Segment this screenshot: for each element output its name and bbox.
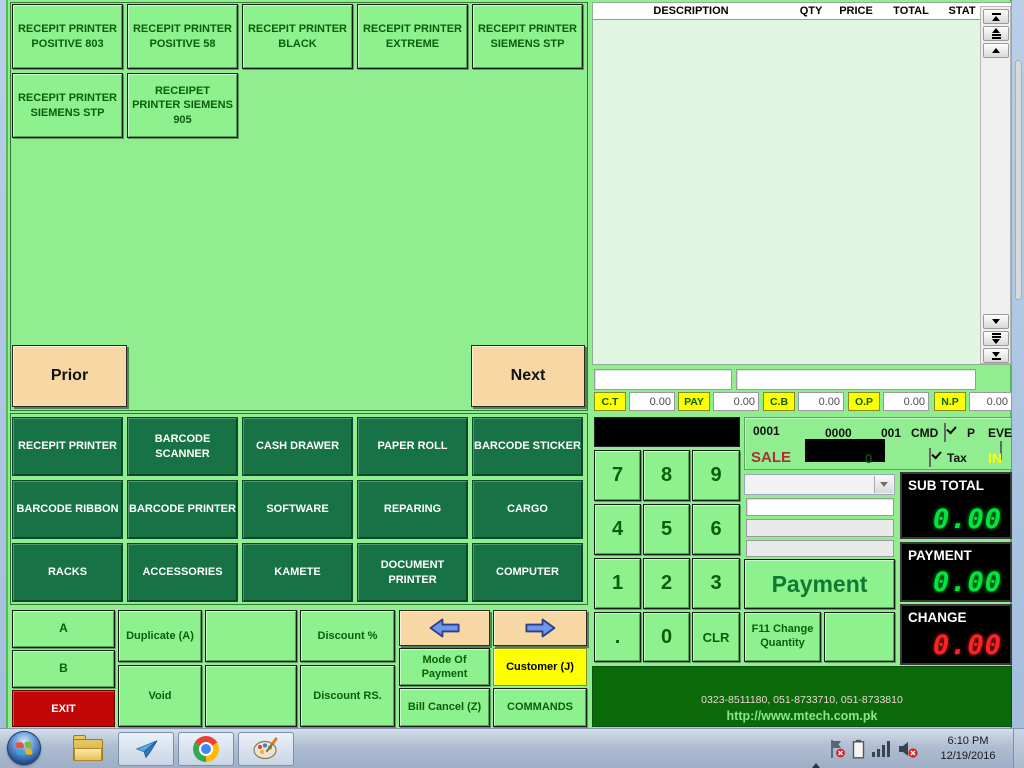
subtotal-label: SUB TOTAL	[902, 474, 1010, 493]
product-button-3[interactable]: RECEPIT PRINTER BLACK	[242, 4, 353, 69]
category-button-reparing[interactable]: REPARING	[357, 480, 468, 539]
commands-button[interactable]: COMMANDS	[493, 688, 587, 727]
discount-rs-button[interactable]: Discount RS.	[300, 665, 395, 727]
eve-label: EVE	[988, 426, 1012, 440]
flag-yellow	[25, 748, 33, 755]
key-label: 9	[710, 464, 721, 487]
bar-icon	[992, 34, 1001, 36]
folder-icon	[73, 739, 103, 761]
transaction-info-panel: 0001 0000 001 CMD P EVE SALE 0 Tax IN	[744, 417, 1012, 470]
category-label: PAPER ROLL	[377, 439, 447, 454]
a-label: A	[59, 621, 68, 637]
taskbar-chrome-button[interactable]	[178, 732, 234, 766]
product-button-6[interactable]: RECEPIT PRINTER SIEMENS STP	[12, 73, 123, 138]
ct-label: C.T	[594, 392, 626, 411]
in-label: IN	[988, 450, 1002, 466]
a-button[interactable]: A	[12, 610, 115, 648]
header-description: DESCRIPTION	[653, 5, 728, 17]
numpad-2[interactable]: 2	[643, 558, 690, 609]
blank-button-2[interactable]	[205, 665, 297, 727]
bar-icon	[992, 336, 1001, 338]
key-label: 4	[612, 518, 623, 541]
category-button-software[interactable]: SOFTWARE	[242, 480, 353, 539]
flag-red	[16, 742, 24, 749]
key-label: 2	[661, 572, 672, 595]
product-button-7[interactable]: RECEIPET PRINTER SIEMENS 905	[127, 73, 238, 138]
payment-type-dropdown[interactable]	[744, 474, 895, 495]
category-label: DOCUMENT PRINTER	[358, 558, 467, 588]
numpad-display	[594, 417, 740, 447]
change-label: CHANGE	[902, 606, 1010, 625]
counter-number: 0000	[825, 426, 852, 440]
numpad-0[interactable]: 0	[643, 612, 690, 662]
category-label: ACCESSORIES	[142, 565, 222, 580]
header-price: PRICE	[839, 5, 873, 17]
duplicate-label: Duplicate (A)	[126, 629, 194, 643]
numpad-4[interactable]: 4	[594, 504, 641, 555]
category-label: REPARING	[384, 502, 441, 517]
np-value: 0.00	[969, 392, 1012, 411]
taskbar-clock[interactable]: 6:10 PM 12/19/2016	[928, 734, 1008, 764]
windows-logo-icon	[7, 731, 41, 765]
change-display: CHANGE 0.00	[900, 604, 1012, 665]
category-button-paper-roll[interactable]: PAPER ROLL	[357, 417, 468, 476]
numpad-1[interactable]: 1	[594, 558, 641, 609]
taskbar-paint-button[interactable]	[238, 732, 294, 766]
category-label: CARGO	[507, 502, 548, 517]
triangle-up-icon	[992, 16, 1000, 21]
key-label: 8	[661, 464, 672, 487]
payment-display: PAYMENT 0.00	[900, 542, 1012, 602]
category-label: SOFTWARE	[266, 502, 328, 517]
category-button-computer[interactable]: COMPUTER	[472, 543, 583, 602]
website-link[interactable]: http://www.mtech.com.pk	[727, 709, 878, 723]
void-button[interactable]: Void	[118, 665, 202, 727]
category-button-barcode-scanner[interactable]: BARCODE SCANNER	[127, 417, 238, 476]
numpad-9[interactable]: 9	[692, 450, 740, 501]
numpad-7[interactable]: 7	[594, 450, 641, 501]
bill-number: 0001	[753, 424, 780, 438]
tax-checkbox[interactable]	[929, 448, 931, 467]
pay-value: 0.00	[713, 392, 759, 411]
next-label: Next	[511, 367, 546, 385]
contact-phones: 0323-8511180, 051-8733710, 051-8733810	[701, 694, 903, 706]
op-label: O.P	[848, 392, 880, 411]
category-label: BARCODE SCANNER	[128, 432, 237, 462]
volume-muted-icon[interactable]	[897, 738, 919, 760]
triangle-down-icon	[992, 339, 1000, 344]
numpad-dot[interactable]: .	[594, 612, 641, 662]
payment-button[interactable]: Payment	[744, 559, 895, 609]
battery-icon[interactable]	[852, 739, 865, 759]
user-number: 001	[881, 426, 901, 440]
key-label: 0	[661, 626, 672, 649]
category-button-cash-drawer[interactable]: CASH DRAWER	[242, 417, 353, 476]
category-label: CASH DRAWER	[256, 439, 339, 454]
discount-percent-label: Discount %	[318, 629, 378, 643]
f11-label: F11 Change Quantity	[745, 623, 820, 651]
bar-icon	[992, 37, 1001, 39]
show-desktop-button[interactable]	[1013, 729, 1024, 768]
numpad-3[interactable]: 3	[692, 558, 740, 609]
np-label: N.P	[934, 392, 966, 411]
discount-rs-label: Discount RS.	[313, 689, 381, 703]
product-button-label: RECEPIT PRINTER SIEMENS STP	[15, 91, 120, 120]
discount-percent-button[interactable]: Discount %	[300, 610, 395, 662]
receipt-scrollbar[interactable]	[980, 6, 1011, 364]
triangle-up-icon	[992, 48, 1000, 53]
bill-cancel-label: Bill Cancel (Z)	[408, 700, 481, 714]
category-label: BARCODE STICKER	[474, 439, 581, 454]
category-button-accessories[interactable]: ACCESSORIES	[127, 543, 238, 602]
background-window-scrollbar	[1015, 60, 1022, 300]
header-stat: STAT	[948, 5, 975, 17]
mode-of-payment-label: Mode Of Payment	[400, 653, 489, 682]
blank-button-1[interactable]	[205, 610, 297, 662]
exit-label: EXIT	[51, 703, 75, 715]
numpad-6[interactable]: 6	[692, 504, 740, 555]
pos-window: RECEPIT PRINTER POSITIVE 803 RECEPIT PRI…	[6, 0, 1012, 728]
bill-cancel-button[interactable]: Bill Cancel (Z)	[399, 688, 490, 727]
b-button[interactable]: B	[12, 650, 115, 688]
product-button-1[interactable]: RECEPIT PRINTER POSITIVE 803	[12, 4, 123, 69]
item-code-input[interactable]	[594, 369, 732, 390]
mode-of-payment-button[interactable]: Mode Of Payment	[399, 648, 490, 686]
category-button-cargo[interactable]: CARGO	[472, 480, 583, 539]
duplicate-button[interactable]: Duplicate (A)	[118, 610, 202, 662]
category-label: RACKS	[48, 565, 87, 580]
numpad-clr[interactable]: CLR	[692, 612, 740, 662]
product-button-label: RECEPIT PRINTER POSITIVE 803	[15, 22, 120, 51]
change-value: 0.00	[933, 630, 1002, 661]
paint-icon	[252, 737, 280, 761]
category-label: RECEPIT PRINTER	[18, 439, 117, 454]
key-label: CLR	[703, 630, 730, 645]
scroll-down-button[interactable]	[983, 314, 1009, 329]
paper-plane-icon	[133, 738, 159, 760]
subtotal-display: SUB TOTAL 0.00	[900, 472, 1012, 539]
pay-label: PAY	[678, 392, 710, 411]
commands-label: COMMANDS	[507, 700, 573, 714]
key-label: 3	[710, 572, 721, 595]
customer-label: Customer (J)	[506, 661, 574, 673]
action-center-flag-icon[interactable]	[828, 738, 846, 760]
header-qty: QTY	[800, 5, 823, 17]
key-label: 1	[612, 572, 623, 595]
item-count: 0	[865, 451, 872, 466]
scroll-page-down-button[interactable]	[983, 331, 1009, 346]
category-button-barcode-ribbon[interactable]: BARCODE RIBBON	[12, 480, 123, 539]
flag-green	[24, 741, 32, 748]
taskbar-pos-app-button[interactable]	[118, 732, 174, 766]
left-arrow-icon	[428, 616, 462, 640]
dropdown-button[interactable]	[874, 476, 893, 493]
item-description-input[interactable]	[736, 369, 976, 390]
scroll-to-top-button[interactable]	[983, 9, 1009, 24]
payment-display-value: 0.00	[933, 567, 1002, 598]
ct-value: 0.00	[629, 392, 675, 411]
page-right-button[interactable]	[493, 610, 587, 646]
footer-banner: 0323-8511180, 051-8733710, 051-8733810 h…	[592, 666, 1012, 727]
bar-icon	[992, 358, 1001, 360]
barcode-display	[805, 439, 885, 462]
desktop: { "colors": { "light_green": "#90EE90", …	[0, 0, 1024, 768]
network-signal-icon[interactable]	[872, 740, 892, 758]
product-button-2[interactable]: RECEPIT PRINTER POSITIVE 58	[127, 4, 238, 69]
product-button-label: RECEPIT PRINTER SIEMENS STP	[475, 22, 580, 51]
right-arrow-icon	[523, 616, 557, 640]
product-button-label: RECEPIT PRINTER BLACK	[245, 22, 350, 51]
page-left-button[interactable]	[399, 610, 490, 646]
triangle-up-icon	[992, 28, 1000, 33]
taskbar-explorer-button[interactable]	[66, 736, 110, 764]
flag-blue	[16, 749, 24, 756]
cmd-checkbox[interactable]	[944, 423, 946, 442]
bar-icon	[992, 13, 1001, 15]
category-label: KAMETE	[274, 565, 320, 580]
customer-button[interactable]: Customer (J)	[493, 648, 587, 686]
op-value: 0.00	[883, 392, 929, 411]
category-button-racks[interactable]: RACKS	[12, 543, 123, 602]
category-button-barcode-printer[interactable]: BARCODE PRINTER	[127, 480, 238, 539]
category-label: BARCODE PRINTER	[129, 502, 236, 517]
prior-button[interactable]: Prior	[12, 345, 127, 407]
clock-time: 6:10 PM	[928, 734, 1008, 749]
category-label: BARCODE RIBBON	[16, 502, 118, 517]
b-label: B	[59, 661, 68, 677]
product-button-label: RECEIPET PRINTER SIEMENS 905	[130, 84, 235, 127]
scroll-up-button[interactable]	[983, 43, 1009, 58]
readonly-field-2	[746, 540, 894, 557]
key-label: 6	[710, 518, 721, 541]
start-button[interactable]	[7, 731, 41, 765]
triangle-down-icon	[992, 352, 1000, 357]
f11-change-quantity-button[interactable]: F11 Change Quantity	[744, 612, 821, 662]
blank-button-3[interactable]	[824, 612, 895, 662]
category-button-kamete[interactable]: KAMETE	[242, 543, 353, 602]
p-label: P	[967, 426, 975, 440]
payment-label: Payment	[772, 571, 868, 598]
receipt-table-header: DESCRIPTION QTY PRICE TOTAL STAT	[593, 3, 1011, 20]
receipt-table: DESCRIPTION QTY PRICE TOTAL STAT	[592, 2, 1012, 365]
show-hidden-icons-button[interactable]	[812, 746, 820, 764]
clock-date: 12/19/2016	[928, 749, 1008, 764]
category-label: COMPUTER	[496, 565, 559, 580]
tax-label: Tax	[947, 451, 967, 465]
numpad-8[interactable]: 8	[643, 450, 690, 501]
header-total: TOTAL	[893, 5, 929, 17]
subtotal-value: 0.00	[933, 504, 1002, 535]
key-label: 7	[612, 464, 623, 487]
void-label: Void	[148, 689, 171, 703]
chevron-up-icon	[812, 746, 820, 768]
numpad-5[interactable]: 5	[643, 504, 690, 555]
chrome-icon	[193, 736, 219, 762]
sale-mode-label: SALE	[751, 449, 791, 466]
scroll-to-bottom-button[interactable]	[983, 348, 1009, 363]
product-button-label: RECEPIT PRINTER EXTREME	[360, 22, 465, 51]
category-button-document-printer[interactable]: DOCUMENT PRINTER	[357, 543, 468, 602]
product-button-5[interactable]: RECEPIT PRINTER SIEMENS STP	[472, 4, 583, 69]
prior-label: Prior	[51, 367, 88, 385]
category-button-recepit-printer[interactable]: RECEPIT PRINTER	[12, 417, 123, 476]
readonly-field-1	[746, 519, 894, 537]
product-button-label: RECEPIT PRINTER POSITIVE 58	[130, 22, 235, 51]
key-label: 5	[661, 518, 672, 541]
next-button[interactable]: Next	[471, 345, 585, 407]
exit-button[interactable]: EXIT	[12, 690, 115, 727]
bar-icon	[992, 333, 1001, 335]
payment-display-label: PAYMENT	[902, 544, 1010, 563]
cmd-label: CMD	[911, 426, 938, 440]
chevron-down-icon	[880, 482, 888, 487]
amount-input[interactable]	[746, 498, 894, 516]
product-button-4[interactable]: RECEPIT PRINTER EXTREME	[357, 4, 468, 69]
taskbar: 6:10 PM 12/19/2016	[0, 728, 1024, 768]
triangle-down-icon	[992, 319, 1000, 324]
category-button-barcode-sticker[interactable]: BARCODE STICKER	[472, 417, 583, 476]
cb-label: C.B	[763, 392, 795, 411]
cb-value: 0.00	[798, 392, 844, 411]
scroll-page-up-button[interactable]	[983, 26, 1009, 41]
key-label: .	[615, 626, 621, 649]
